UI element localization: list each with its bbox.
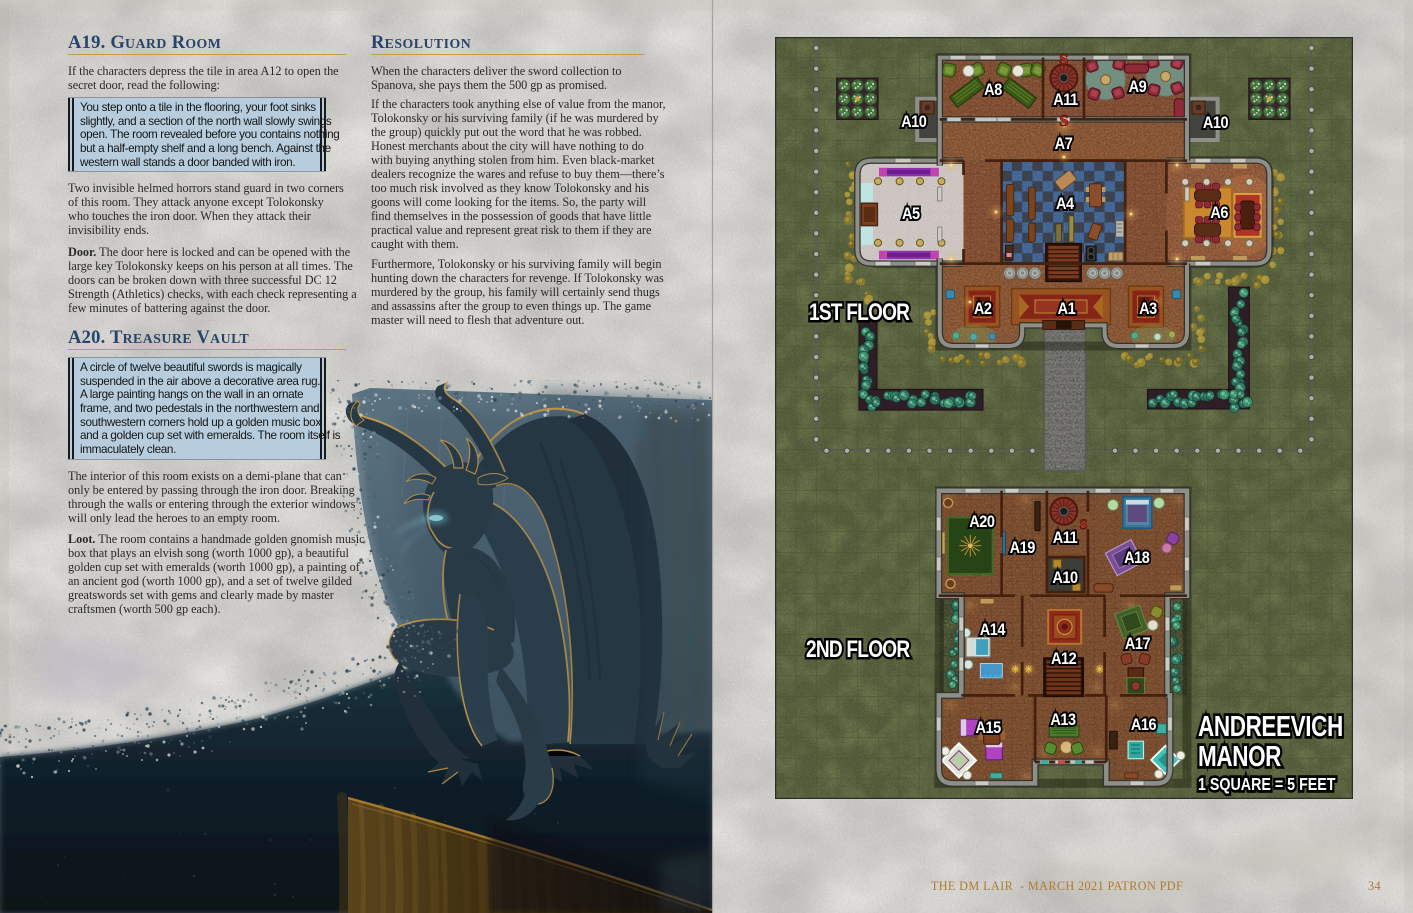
svg-text:A16: A16 (1131, 716, 1157, 734)
svg-text:A9: A9 (1129, 78, 1147, 96)
svg-text:2ND FLOOR: 2ND FLOOR (806, 635, 910, 663)
svg-text:A17: A17 (1125, 635, 1150, 653)
svg-text:A2: A2 (974, 300, 992, 318)
svg-text:A15: A15 (975, 719, 1001, 737)
svg-text:A14: A14 (980, 621, 1006, 639)
svg-text:A13: A13 (1050, 711, 1076, 729)
svg-text:MANOR: MANOR (1198, 742, 1282, 773)
svg-text:A6: A6 (1210, 204, 1228, 222)
svg-text:A19: A19 (1010, 539, 1036, 557)
svg-text:A5: A5 (902, 205, 920, 223)
svg-text:A20: A20 (969, 513, 994, 531)
svg-text:A12: A12 (1051, 650, 1077, 668)
svg-text:1ST FLOOR: 1ST FLOOR (809, 298, 910, 326)
svg-text:A18: A18 (1124, 549, 1150, 567)
svg-text:A7: A7 (1055, 135, 1073, 153)
svg-text:A10: A10 (1052, 569, 1077, 587)
svg-text:A11: A11 (1053, 91, 1078, 109)
svg-text:A10: A10 (901, 113, 926, 131)
svg-text:S: S (1059, 111, 1068, 130)
svg-text:ANDREEVICH: ANDREEVICH (1198, 712, 1343, 743)
svg-text:A4: A4 (1056, 195, 1074, 213)
svg-text:A1: A1 (1058, 300, 1076, 318)
svg-text:A8: A8 (984, 81, 1002, 99)
svg-text:A10: A10 (1203, 114, 1228, 132)
svg-text:A3: A3 (1139, 300, 1157, 318)
svg-text:S: S (1059, 50, 1068, 69)
svg-text:S: S (1080, 517, 1088, 533)
svg-text:1 SQUARE = 5 FEET: 1 SQUARE = 5 FEET (1198, 776, 1336, 795)
svg-text:A11: A11 (1053, 529, 1078, 547)
